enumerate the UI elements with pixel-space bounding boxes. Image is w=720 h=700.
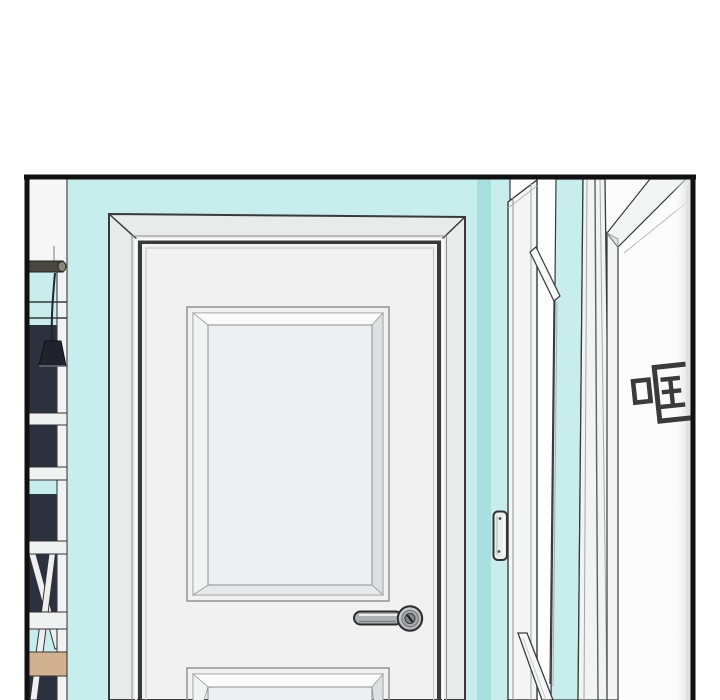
lower-panel-field	[208, 687, 372, 700]
handle-lever	[354, 612, 402, 625]
curtain-rod-knob	[58, 262, 66, 272]
upper-panel-field	[208, 325, 372, 585]
shelf-bar-2	[29, 467, 67, 480]
hallway-wall-shade-band	[477, 179, 491, 700]
shelf-bar-1	[29, 413, 67, 425]
strike-plate-screw-bottom	[498, 550, 501, 553]
main-door	[109, 214, 465, 700]
comic-panel-image: 哐	[0, 0, 720, 700]
upper-panel-bevel-top	[193, 313, 383, 325]
upper-panel-bevel-bottom	[193, 585, 383, 595]
right-door-edge-shading	[672, 179, 691, 700]
shelf-bar-4	[29, 612, 67, 629]
strike-plate-screw-top	[499, 517, 502, 520]
sfx-kuang-glyph: 哐	[627, 361, 692, 435]
bookshelf-side-post	[57, 271, 67, 700]
left-room-white-wall	[29, 179, 67, 272]
left-room-strip	[28, 179, 67, 700]
comic-page: 哐	[0, 0, 720, 700]
hallway: 哐	[494, 179, 692, 700]
sfx-text: 哐	[627, 361, 692, 435]
door-panel-upper	[187, 307, 389, 601]
shelf-teal-gap-1	[29, 480, 57, 494]
shelf-bar-3	[29, 541, 67, 554]
lower-panel-bevel-top	[193, 674, 383, 687]
strike-plate	[494, 512, 508, 561]
upper-panel-bevel-left	[193, 313, 208, 595]
wood-shelf-board	[29, 652, 67, 676]
upper-panel-bevel-right	[372, 313, 383, 595]
right-frame-vertical-rail	[607, 233, 618, 700]
